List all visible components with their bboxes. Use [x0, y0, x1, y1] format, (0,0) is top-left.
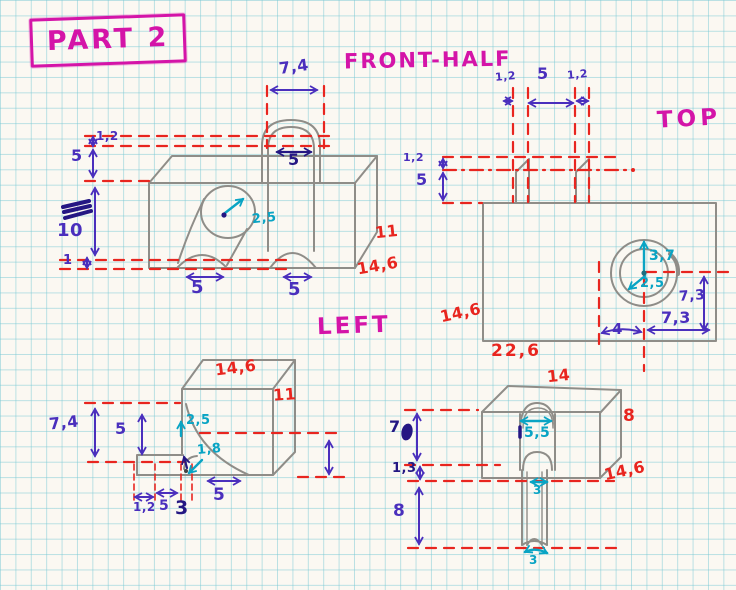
left-dim-tongue-width: 5 [159, 499, 169, 513]
left-view-label: LEFT [317, 314, 392, 340]
top-dim-overall-width: 22,6 [491, 343, 541, 360]
top-dim-bore-offset-y: 7,3 [679, 288, 706, 304]
sketch-canvas [0, 0, 736, 590]
left-dim-tongue-height: 7,4 [48, 413, 79, 432]
top-view-label: TOP [656, 106, 721, 132]
front-dim-slot-width: 5 [288, 152, 300, 168]
left-dim-step-width: 3 [175, 499, 189, 518]
bottom-dim-pin-width-lower: 3 [529, 554, 538, 566]
bottom-dim-top-width: 14 [546, 367, 571, 385]
front-dim-right-arch-width: 5 [288, 281, 301, 299]
front-dim-side-depth: 11 [374, 223, 399, 241]
top-dim-bore-offset-x: 7,3 [661, 310, 691, 326]
left-dim-tongue-lip: 1,2 [133, 501, 156, 513]
top-dim-edge-lip: 1,2 [403, 152, 424, 163]
front-dim-mid-height: 10 [57, 222, 83, 240]
front-dim-bore-radius: 2,5 [251, 211, 277, 226]
part-title-box: PART 2 [29, 13, 187, 67]
bottom-view-outline [482, 386, 621, 545]
top-dim-bore-outer-radius: 3,7 [649, 249, 675, 263]
drawing-sheet: PART 2 FRONT-HALF TOP LEFT 7,4 5 1,2 5 1… [0, 0, 736, 590]
top-dim-bore-inner-radius: 2,5 [640, 277, 665, 290]
front-dim-upper-height: 5 [71, 148, 83, 164]
top-dim-tab-gap: 5 [537, 66, 549, 82]
left-dim-side-height: 11 [272, 386, 296, 404]
front-dim-base-lip: 1 [63, 254, 73, 267]
bottom-dim-upper-height: 7 [389, 419, 401, 435]
bottom-dim-pin-length: 8 [393, 503, 405, 520]
bottom-dim-lip-height: 1,3 [392, 462, 417, 475]
top-dim-tab-wall-left: 1,2 [495, 70, 517, 83]
dimension-arrows-teal [181, 199, 647, 553]
left-dim-fillet-radius: 1,8 [196, 442, 222, 457]
bottom-dim-pin-width-upper: 3 [533, 484, 542, 496]
left-dim-corner-radius: 2,5 [186, 414, 211, 427]
left-dim-base-width: 5 [213, 487, 225, 504]
top-dim-tab-wall-right: 1,2 [567, 68, 589, 81]
front-dim-tab-outer-width: 7,4 [278, 57, 310, 77]
front-dim-left-arch-width: 5 [191, 279, 204, 297]
bottom-dim-slot-width: 5,5 [524, 426, 550, 440]
part-title: PART 2 [46, 22, 169, 57]
left-dim-tongue-face: 5 [115, 421, 127, 437]
bottom-dim-side-height: 8 [623, 408, 635, 425]
top-dim-center-offset: 4 [612, 322, 623, 337]
front-view-outline [149, 120, 377, 268]
front-dim-top-lip: 1,2 [96, 130, 119, 142]
front-view-label: FRONT-HALF [344, 49, 512, 73]
top-dim-edge-depth: 5 [416, 172, 428, 188]
